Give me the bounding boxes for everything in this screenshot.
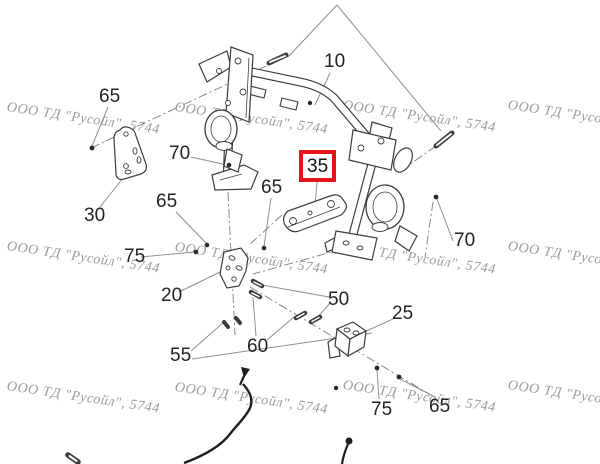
bolt-top-right xyxy=(436,133,452,146)
bolt-bracket-50 xyxy=(253,281,262,286)
bolt-55-a xyxy=(224,322,228,327)
callout-60[interactable]: 60 xyxy=(247,337,268,356)
callout-70-right[interactable]: 70 xyxy=(454,231,475,250)
bracket-25 xyxy=(328,322,366,358)
bolt-bracket-60 xyxy=(251,292,260,297)
callout-20[interactable]: 20 xyxy=(161,286,182,305)
rail-tab xyxy=(280,98,298,110)
callout-65-top-left[interactable]: 65 xyxy=(99,87,120,106)
retractor-right xyxy=(349,122,417,251)
bracket-30 xyxy=(114,127,146,180)
callout-50[interactable]: 50 xyxy=(328,290,349,309)
small-part-bottom-left xyxy=(68,455,78,462)
diagram-svg xyxy=(0,0,600,464)
bolt-top-left xyxy=(269,55,286,63)
cable-short xyxy=(342,438,353,464)
bracket-20 xyxy=(220,248,248,288)
cable-main xyxy=(184,367,251,463)
retractor-left xyxy=(199,47,253,172)
callout-55[interactable]: 55 xyxy=(170,346,191,365)
frame-foot-right xyxy=(325,231,377,260)
callout-40-top[interactable]: 40 xyxy=(327,0,348,3)
pin-60 xyxy=(296,313,305,318)
callout-75-bottom[interactable]: 75 xyxy=(371,400,392,419)
parts-diagram-page: ООО ТД "Русойл", 5744ООО ТД "Русойл", 57… xyxy=(0,0,600,464)
pin-50 xyxy=(311,317,320,322)
callout-10[interactable]: 10 xyxy=(324,52,345,71)
callout-30[interactable]: 30 xyxy=(84,206,105,225)
callout-25[interactable]: 25 xyxy=(392,304,413,323)
callout-65-mid-left[interactable]: 65 xyxy=(156,192,177,211)
callout-70-left[interactable]: 70 xyxy=(169,144,190,163)
callout-65-bottom[interactable]: 65 xyxy=(429,397,450,416)
bolt-55-b xyxy=(236,318,240,323)
callout-35[interactable]: 35 xyxy=(299,150,336,182)
callout-75-left[interactable]: 75 xyxy=(124,247,145,266)
callout-65-center[interactable]: 65 xyxy=(261,178,282,197)
